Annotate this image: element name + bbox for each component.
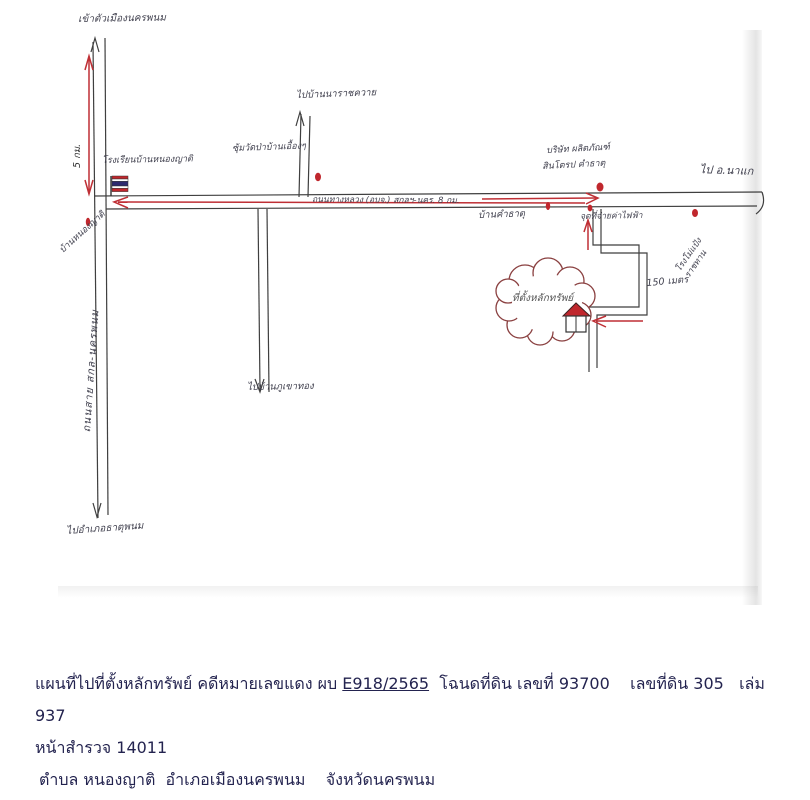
- footer-line1-prefix: แผนที่ไปที่ตั้งหลักทรัพย์ คดีหมายเลขแดง …: [35, 674, 342, 693]
- case-number: E918/2565: [342, 674, 429, 693]
- label-to-phu-khao-thong: ไปบ้านภูเขาทอง: [247, 381, 314, 393]
- footer-line2: หน้าสำรวจ 14011: [35, 732, 795, 764]
- access-road: [589, 209, 647, 372]
- branch-road-down: [255, 209, 269, 392]
- label-school: โรงเรียนบ้านหนองญาติ: [102, 154, 193, 167]
- branch-road-up: [296, 112, 310, 197]
- label-ban-kham-that: บ้านคำธาตุ: [478, 208, 525, 221]
- label-5km: 5 กม.: [72, 144, 83, 168]
- label-highway: ถนนทางหลวง (อบจ.) สกลฯ-นคร. 8 กม.: [312, 195, 460, 207]
- footer-line1: แผนที่ไปที่ตั้งหลักทรัพย์ คดีหมายเลขแดง …: [35, 668, 795, 732]
- scanned-map-document: เข้าตัวเมืองนครพนม 5 กม. ถนนสาย สกล-นครพ…: [0, 0, 810, 800]
- left-road: [91, 38, 108, 518]
- label-electric-point: จุดที่จ่ายค่าไฟฟ้า: [580, 211, 643, 223]
- document-footer: แผนที่ไปที่ตั้งหลักทรัพย์ คดีหมายเลขแดง …: [35, 668, 795, 796]
- school-flag-icon: [111, 176, 128, 196]
- footer-line3: ตำบล หนองญาติ อำเภอเมืองนครพนม จังหวัดนค…: [35, 764, 795, 796]
- label-to-city: เข้าตัวเมืองนครพนม: [78, 12, 166, 25]
- label-to-na-kae: ไป อ.นาแก: [700, 164, 754, 177]
- label-property-location: ที่ตั้งหลักทรัพย์: [512, 293, 573, 304]
